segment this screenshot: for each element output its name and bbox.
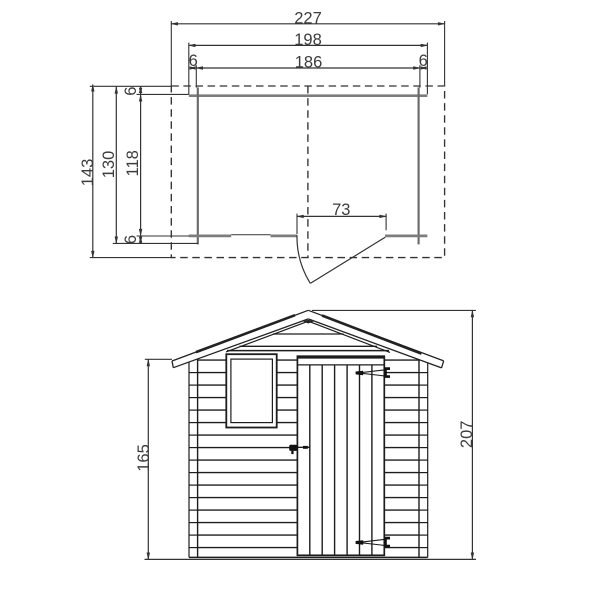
svg-text:207: 207 <box>458 421 476 449</box>
svg-text:73: 73 <box>332 201 350 219</box>
svg-text:143: 143 <box>79 159 97 187</box>
svg-text:165: 165 <box>135 444 153 472</box>
svg-text:186: 186 <box>295 54 323 72</box>
svg-text:6: 6 <box>189 52 198 70</box>
svg-text:6: 6 <box>419 52 428 70</box>
svg-text:118: 118 <box>124 150 142 176</box>
svg-text:6: 6 <box>122 235 140 244</box>
svg-text:227: 227 <box>294 9 322 27</box>
svg-text:130: 130 <box>100 151 118 179</box>
svg-text:6: 6 <box>122 87 140 96</box>
svg-text:198: 198 <box>294 31 322 49</box>
